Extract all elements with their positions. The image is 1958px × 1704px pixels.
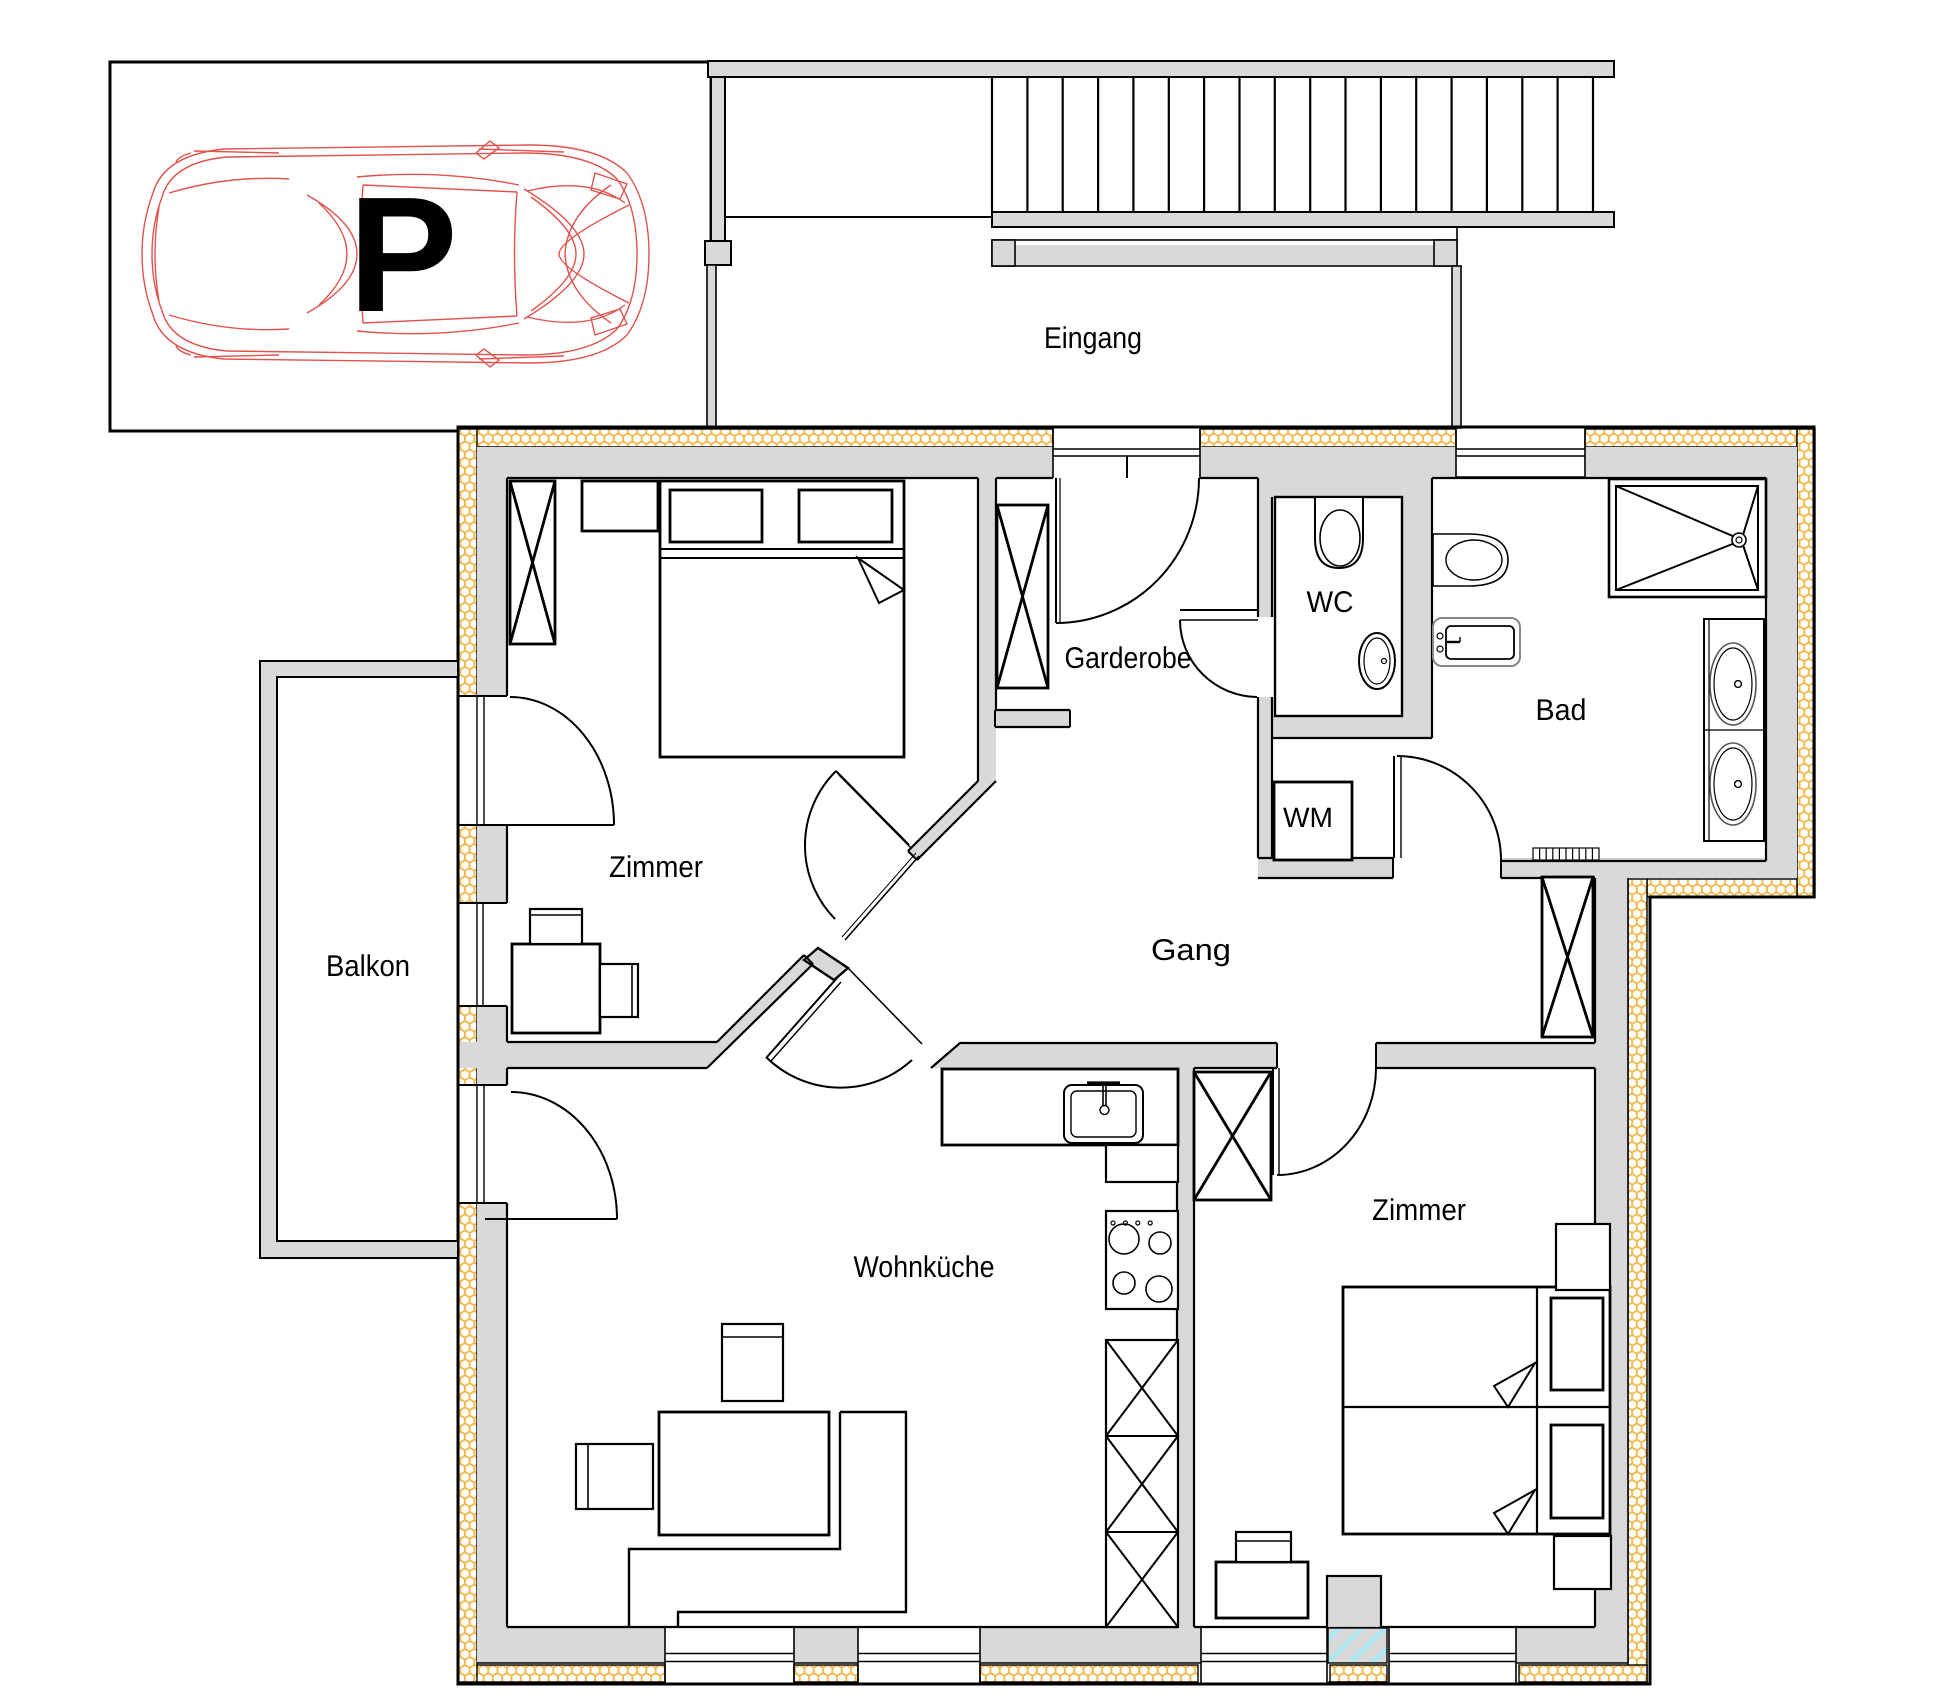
svg-text:P: P <box>348 163 457 346</box>
svg-text:Zimmer: Zimmer <box>1372 1194 1466 1227</box>
svg-text:Zimmer: Zimmer <box>609 851 703 884</box>
svg-text:Wohnküche: Wohnküche <box>854 1251 995 1284</box>
svg-text:WM: WM <box>1283 802 1333 833</box>
svg-text:WC: WC <box>1307 586 1354 619</box>
svg-text:Eingang: Eingang <box>1044 322 1142 355</box>
svg-text:Bad: Bad <box>1536 694 1587 727</box>
svg-text:Balkon: Balkon <box>326 950 410 983</box>
svg-text:Garderobe: Garderobe <box>1065 642 1192 675</box>
svg-text:Gang: Gang <box>1151 934 1231 967</box>
